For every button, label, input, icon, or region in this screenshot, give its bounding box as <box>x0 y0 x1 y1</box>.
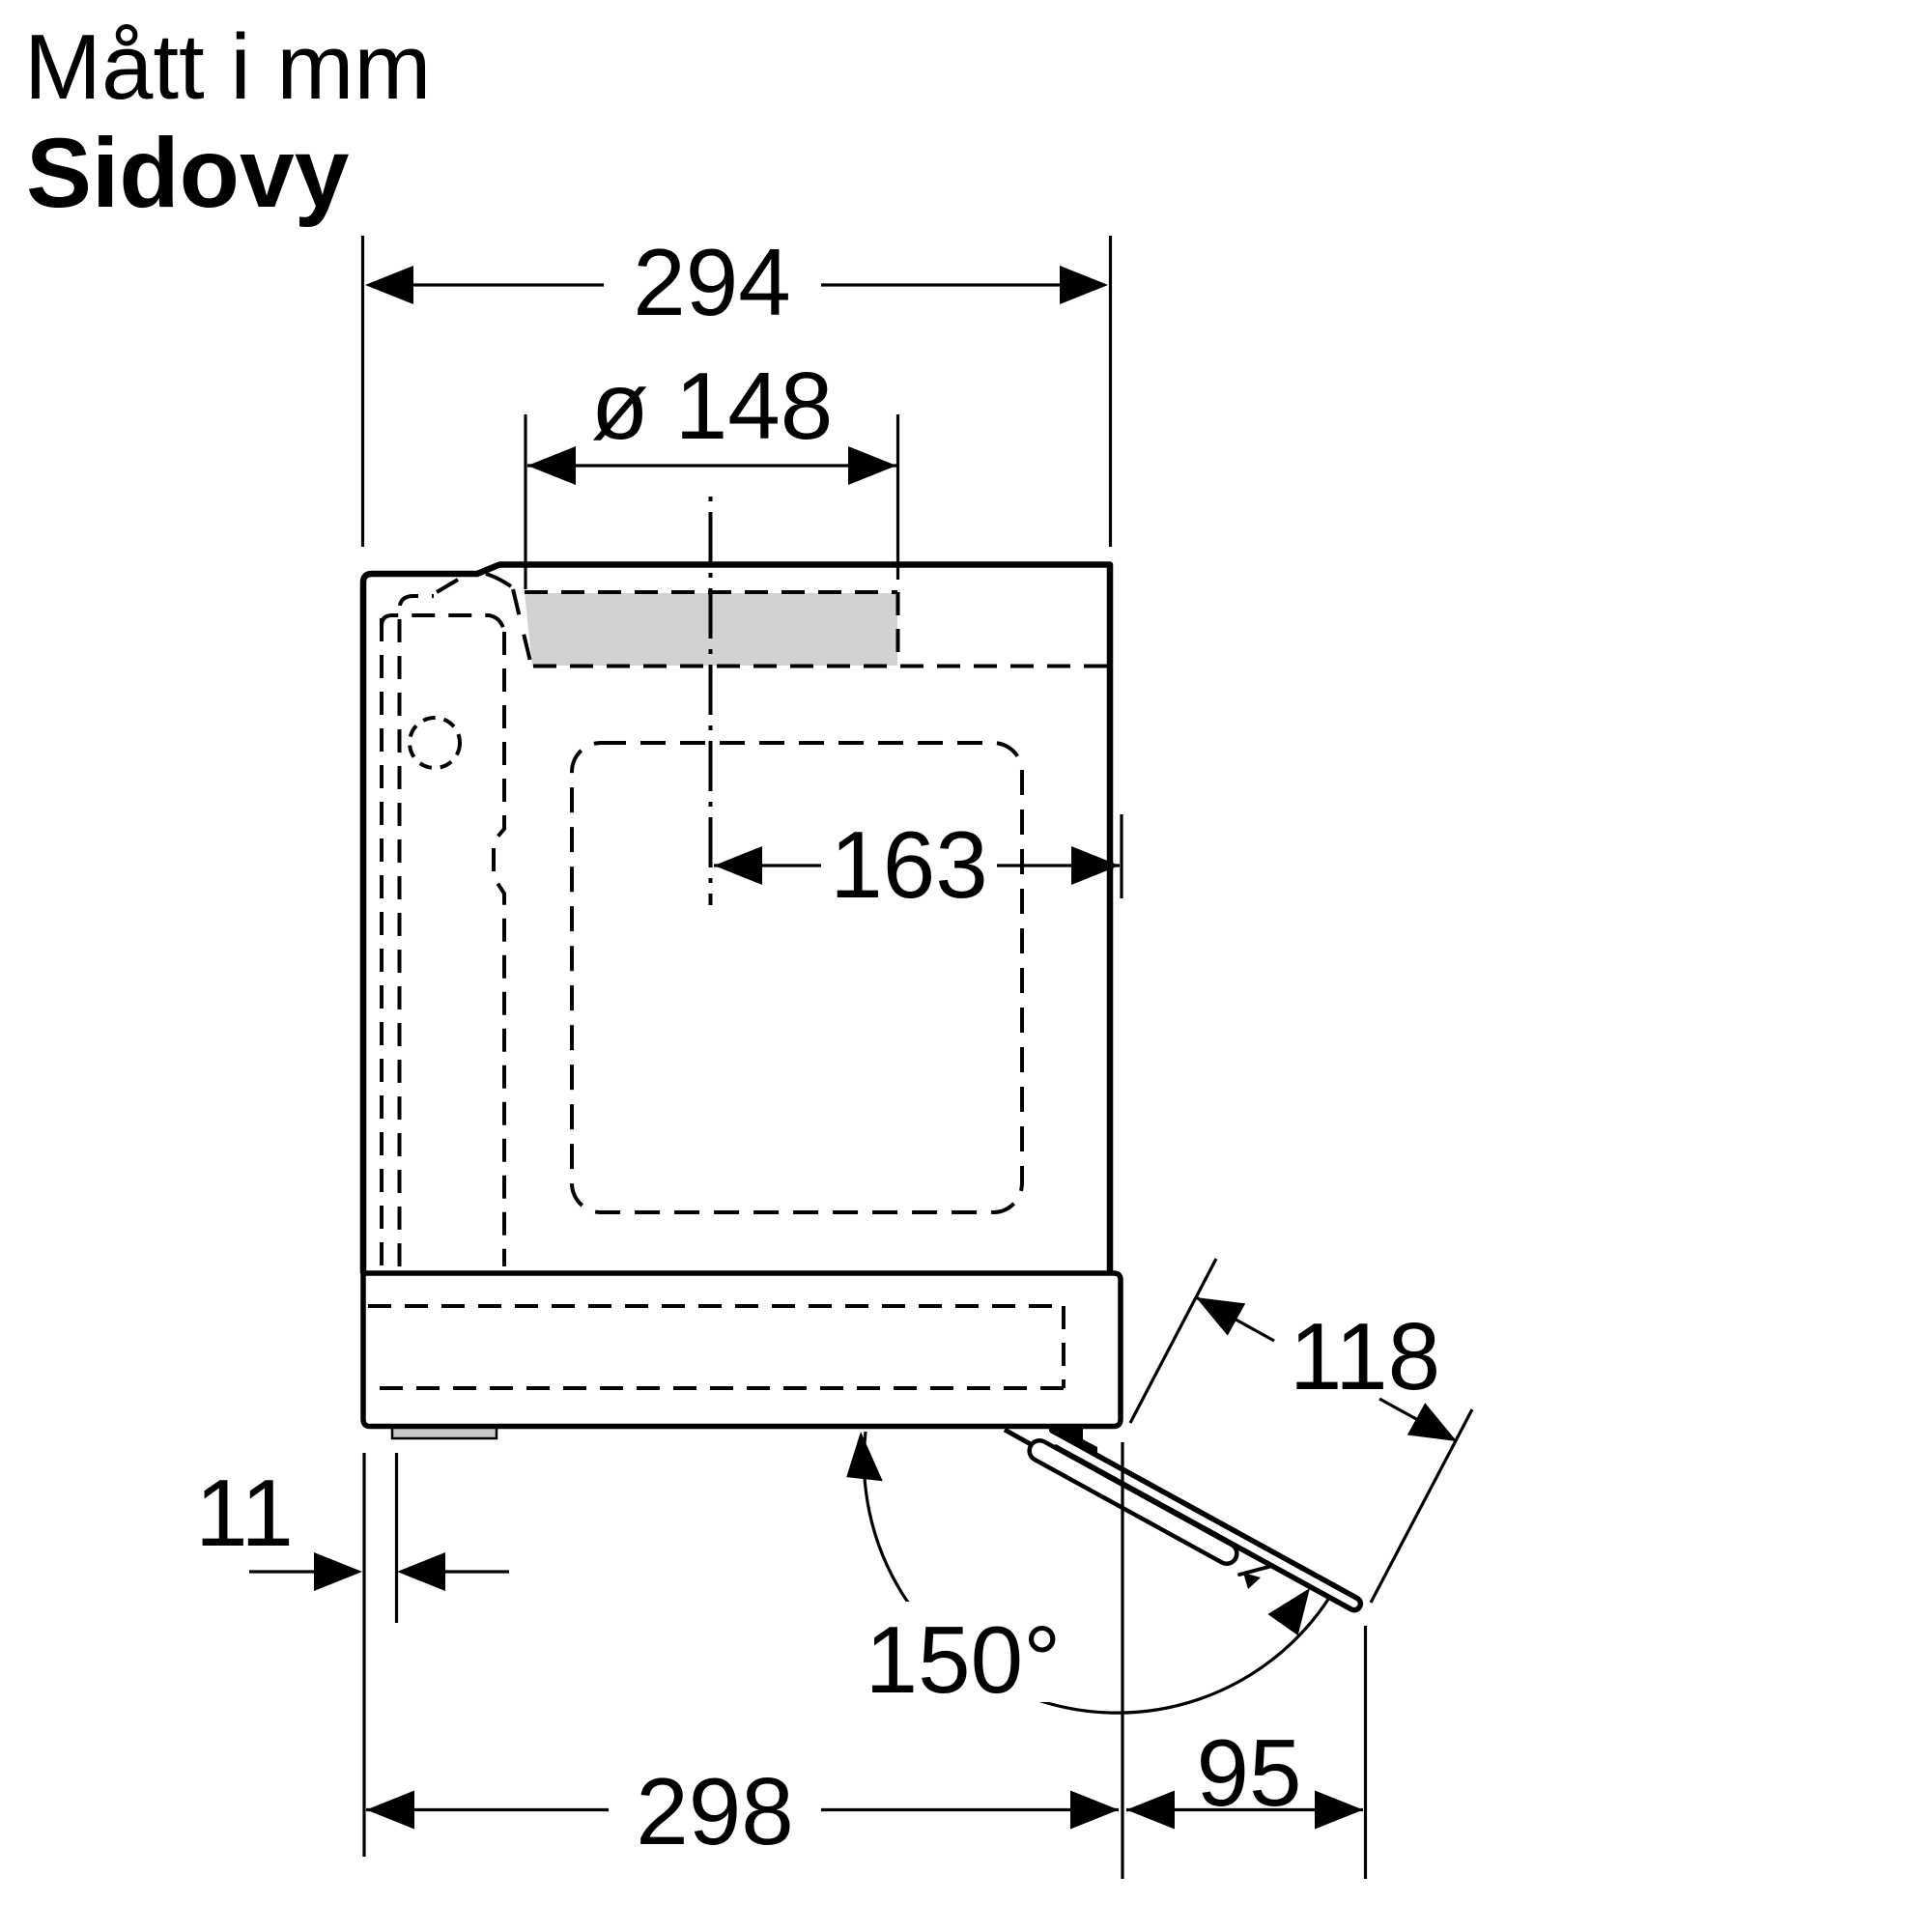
svg-text:294: 294 <box>633 229 791 335</box>
svg-text:Mått i mm: Mått i mm <box>24 15 431 119</box>
svg-text:163: 163 <box>830 811 988 918</box>
svg-text:150°: 150° <box>866 1606 1062 1713</box>
svg-text:118: 118 <box>1290 1303 1440 1409</box>
svg-text:11: 11 <box>195 1460 294 1566</box>
svg-text:298: 298 <box>636 1758 794 1864</box>
svg-text:95: 95 <box>1196 1719 1301 1826</box>
svg-text:ø 148: ø 148 <box>591 353 834 459</box>
svg-text:Sidovy: Sidovy <box>26 118 350 228</box>
